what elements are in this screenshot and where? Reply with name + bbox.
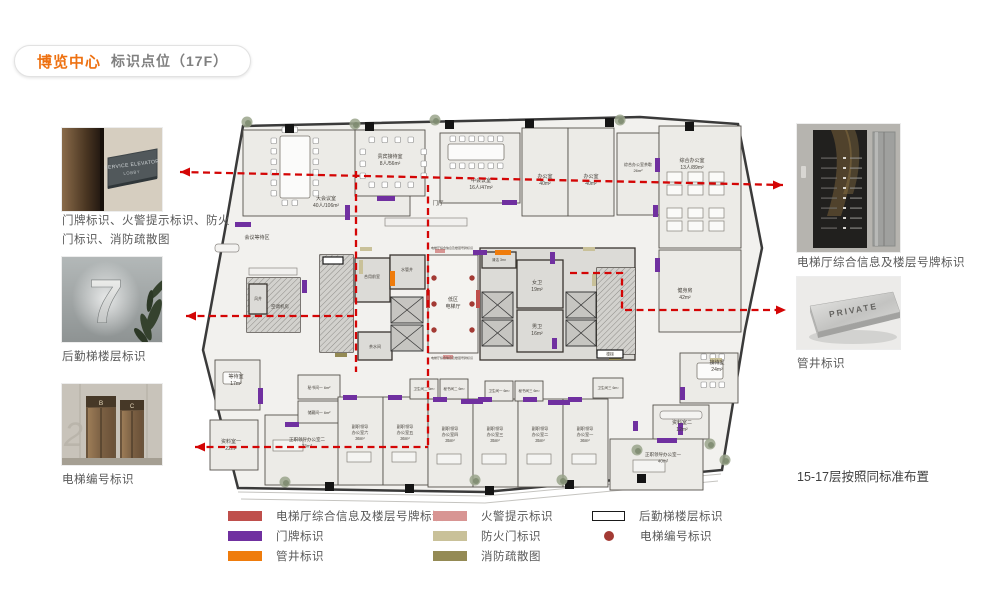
legend-swatch-outline bbox=[592, 511, 625, 521]
room-label: 35m² bbox=[535, 438, 545, 443]
legend-swatch-dot bbox=[592, 531, 626, 541]
plan-label: 门厅 bbox=[432, 199, 444, 207]
floor-plan: 大会议室40人/106m²贵宾接待室8人/56m²中会议室16人/47m²办公室… bbox=[185, 108, 793, 508]
room-label: 40m² bbox=[585, 181, 597, 187]
purple-marker bbox=[473, 250, 487, 255]
legend-item: 消防疏散图 bbox=[433, 546, 553, 566]
room-label: 办公室五 bbox=[397, 429, 414, 436]
room-label: 办公室一 bbox=[577, 431, 594, 438]
purple-marker bbox=[523, 397, 537, 402]
room-label: 73m² bbox=[302, 443, 313, 448]
room-label: 办公室二 bbox=[532, 431, 549, 438]
khaki-marker bbox=[592, 274, 596, 286]
elevator-door bbox=[873, 132, 895, 246]
elevator-number-dot bbox=[469, 275, 474, 280]
room-label: 40人/106m² bbox=[313, 203, 339, 209]
legend-item: 管井标识 bbox=[228, 546, 444, 566]
room-label: 综合办公室茶歇 bbox=[624, 161, 652, 167]
legend-item: 门牌标识 bbox=[228, 526, 444, 546]
legend-label: 火警提示标识 bbox=[481, 508, 553, 524]
room-label: 副职领导 bbox=[577, 425, 594, 432]
legend-swatch-rect bbox=[433, 531, 467, 541]
room-label: 办公室四 bbox=[442, 431, 459, 438]
elevator-number-dot bbox=[469, 301, 474, 306]
floor-strip bbox=[62, 458, 162, 465]
room-label: 办公室六 bbox=[352, 429, 369, 436]
room-label: 16m² bbox=[531, 331, 543, 337]
legend-label: 消防疏散图 bbox=[481, 548, 541, 564]
room-label: 大会议室 bbox=[316, 195, 336, 202]
room-label: 36m² bbox=[580, 438, 590, 443]
brand-name: 博览中心 bbox=[37, 51, 101, 72]
purple-marker bbox=[548, 400, 570, 405]
door-letter-c: C bbox=[130, 404, 135, 410]
call-button-plate bbox=[801, 166, 806, 178]
elevator-door-b: B bbox=[86, 396, 116, 460]
olive-marker bbox=[335, 353, 347, 357]
standards-note: 15-17层按照同标准布置 bbox=[797, 466, 977, 485]
room-label: 接待室 bbox=[709, 359, 724, 366]
purple-marker bbox=[377, 196, 395, 201]
legend-swatch-rect bbox=[228, 531, 262, 541]
room-label: 正职领导办公室二 bbox=[289, 436, 325, 443]
room-label: 办公室 bbox=[583, 173, 598, 180]
legend-item: 防火门标识 bbox=[433, 526, 553, 546]
purple-marker bbox=[285, 422, 299, 427]
page-subtitle: 标识点位（17F） bbox=[111, 51, 228, 71]
room-label: 副职领导 bbox=[352, 423, 369, 430]
room-label: 13人/89m² bbox=[680, 165, 704, 171]
purple-marker bbox=[502, 200, 517, 205]
room-label: 女卫 bbox=[532, 279, 542, 286]
room-label: 8人/56m² bbox=[380, 161, 401, 167]
legend-label: 管井标识 bbox=[276, 548, 324, 564]
room-label: 40m² bbox=[539, 181, 551, 187]
room-label: 水管井 bbox=[401, 266, 413, 272]
room-label: 办公室 bbox=[537, 173, 552, 180]
room-label: 低区 bbox=[448, 296, 458, 303]
room-label: 35m² bbox=[445, 438, 455, 443]
room-label: 风井 bbox=[254, 296, 262, 301]
room-label: 资料室一 bbox=[221, 438, 241, 445]
room-label: 22m² bbox=[225, 446, 237, 452]
red-marker bbox=[476, 290, 480, 308]
room-label: 12m² bbox=[676, 427, 688, 433]
red-marker bbox=[426, 290, 430, 308]
caption-floor-number: 后勤梯楼层标识 bbox=[62, 348, 222, 367]
room-label: 秘书间二 6m² bbox=[444, 386, 466, 391]
legend-swatch-rect bbox=[433, 551, 467, 561]
legend-swatch-rect bbox=[228, 511, 262, 521]
plan-label: 会议等待区 bbox=[244, 234, 269, 241]
caption-directory-panel: 电梯厅综合信息及楼层号牌标识 bbox=[797, 254, 982, 273]
photo-private-plaque: PRIVATE bbox=[797, 277, 900, 349]
purple-marker bbox=[345, 205, 350, 220]
elevator-number-dot bbox=[431, 327, 436, 332]
purple-marker bbox=[568, 397, 582, 402]
legend-swatch-rect bbox=[228, 551, 262, 561]
service-stair-floor-marker bbox=[323, 257, 343, 264]
room-label: 秘书间一 6m² bbox=[308, 385, 332, 390]
purple-marker bbox=[433, 397, 447, 402]
purple-marker bbox=[388, 395, 402, 400]
photo-floor-number: 7 bbox=[62, 257, 162, 342]
room-label: 茶水间 bbox=[369, 343, 381, 349]
directory-panel bbox=[813, 130, 867, 248]
purple-marker bbox=[258, 388, 263, 404]
room-label: 16人/47m² bbox=[469, 185, 493, 191]
legend-label: 防火门标识 bbox=[481, 528, 541, 544]
room-label: 卫生间三 6m² bbox=[598, 385, 620, 390]
caption-door-sign: 门牌标识、火警提示标识、防火门标识、消防疏散图 bbox=[62, 212, 234, 250]
room-label: 副职领导 bbox=[442, 425, 459, 432]
room-label: 合用前室 bbox=[364, 273, 380, 279]
room-label: 17m² bbox=[230, 381, 242, 387]
purple-marker bbox=[655, 258, 660, 272]
room-label: 秘书间三 6m² bbox=[519, 388, 541, 393]
legend-label: 电梯厅综合信息及楼层号牌标识 bbox=[276, 508, 444, 524]
door-letter-b: B bbox=[99, 400, 103, 407]
room-label: 电梯厅 bbox=[445, 303, 460, 310]
room-label: 40m² bbox=[658, 458, 669, 463]
room-label: 中会议室 bbox=[471, 177, 491, 184]
legend-column: 电梯厅综合信息及楼层号牌标识门牌标识管井标识 bbox=[228, 506, 444, 566]
room-label: 储藏间一 6m² bbox=[308, 410, 332, 415]
legend-column: 火警提示标识防火门标识消防疏散图 bbox=[433, 506, 553, 566]
legend-item: 火警提示标识 bbox=[433, 506, 553, 526]
purple-marker bbox=[633, 421, 638, 431]
etched-wall-numeral: 2 bbox=[63, 416, 83, 454]
legend-swatch-rect bbox=[433, 511, 467, 521]
room-label: 男卫 bbox=[532, 324, 542, 330]
room-label: 26m² bbox=[633, 168, 643, 173]
plan-label: 楼梯 bbox=[606, 352, 614, 357]
khaki-marker bbox=[360, 247, 372, 251]
room-label: 卫生间二 6m² bbox=[414, 386, 436, 391]
room-label: 19m² bbox=[531, 287, 543, 293]
purple-marker bbox=[550, 252, 555, 264]
numeral-7: 7 bbox=[89, 268, 123, 337]
orange-marker bbox=[390, 271, 395, 286]
purple-marker bbox=[302, 280, 307, 293]
room-label: 清洁 3m² bbox=[492, 257, 507, 262]
room-label: 贵宾接待室 bbox=[377, 153, 402, 160]
room-label: 副职领导 bbox=[487, 425, 504, 432]
purple-marker bbox=[461, 399, 483, 404]
room-label: 36m² bbox=[355, 436, 365, 441]
purple-marker bbox=[552, 338, 557, 349]
room-label: 36m² bbox=[400, 436, 410, 441]
orange-marker bbox=[495, 250, 511, 255]
plan-label: 电梯厅综合信息及楼层号牌标识 bbox=[431, 245, 473, 250]
elevator-number-dot bbox=[469, 327, 474, 332]
room-label: 健身房 bbox=[677, 287, 692, 294]
room-label: 24m² bbox=[711, 367, 723, 373]
legend-column: 后勤梯楼层标识电梯编号标识 bbox=[592, 506, 723, 546]
room-label: 综合办公室 bbox=[679, 157, 704, 164]
khaki-marker bbox=[359, 260, 363, 274]
purple-marker bbox=[343, 395, 357, 400]
photo-directory-panel bbox=[797, 124, 900, 252]
legend-label: 门牌标识 bbox=[276, 528, 324, 544]
room-label: 35m² bbox=[490, 438, 500, 443]
legend-label: 电梯编号标识 bbox=[640, 528, 712, 544]
room-label: 正职领导办公室一 bbox=[645, 451, 681, 458]
page: 博览中心 标识点位（17F） SERVICE ELEVATOR LOBBY 门牌… bbox=[0, 0, 989, 614]
room-label: 42m² bbox=[679, 295, 691, 301]
page-title: 博览中心 标识点位（17F） bbox=[14, 45, 251, 77]
room-label: 副职领导 bbox=[397, 423, 414, 430]
room-label: 副职领导 bbox=[532, 425, 549, 432]
legend-label: 后勤梯楼层标识 bbox=[639, 508, 723, 524]
plan-label: 电梯厅综合信息及楼层号牌标识 bbox=[431, 355, 473, 360]
caption-shaft-sign: 管井标识 bbox=[797, 355, 917, 374]
purple-marker bbox=[235, 222, 251, 227]
room-label: 资料室二 bbox=[672, 419, 692, 426]
elevator-door-c: C bbox=[120, 400, 144, 458]
elevator-number-dot bbox=[431, 301, 436, 306]
room-label: 办公室三 bbox=[487, 431, 504, 438]
room-label: 卫生间一 6m² bbox=[489, 388, 511, 393]
caption-elevator-number: 电梯编号标识 bbox=[62, 471, 222, 490]
photo-elevator-doors: 2 B C bbox=[62, 384, 162, 465]
legend-item: 电梯编号标识 bbox=[592, 526, 723, 546]
purple-marker bbox=[653, 205, 658, 217]
elevator-number-dot bbox=[431, 275, 436, 280]
purple-marker bbox=[655, 158, 660, 172]
purple-marker bbox=[680, 387, 685, 400]
legend-item: 电梯厅综合信息及楼层号牌标识 bbox=[228, 506, 444, 526]
room-label: 空调机房 bbox=[271, 303, 289, 310]
khaki-marker bbox=[583, 247, 595, 251]
photo-door-sign: SERVICE ELEVATOR LOBBY bbox=[62, 128, 162, 211]
purple-marker bbox=[657, 438, 677, 443]
wood-door bbox=[62, 128, 102, 211]
room-label: 等待室 bbox=[228, 373, 243, 380]
legend-item: 后勤梯楼层标识 bbox=[592, 506, 723, 526]
